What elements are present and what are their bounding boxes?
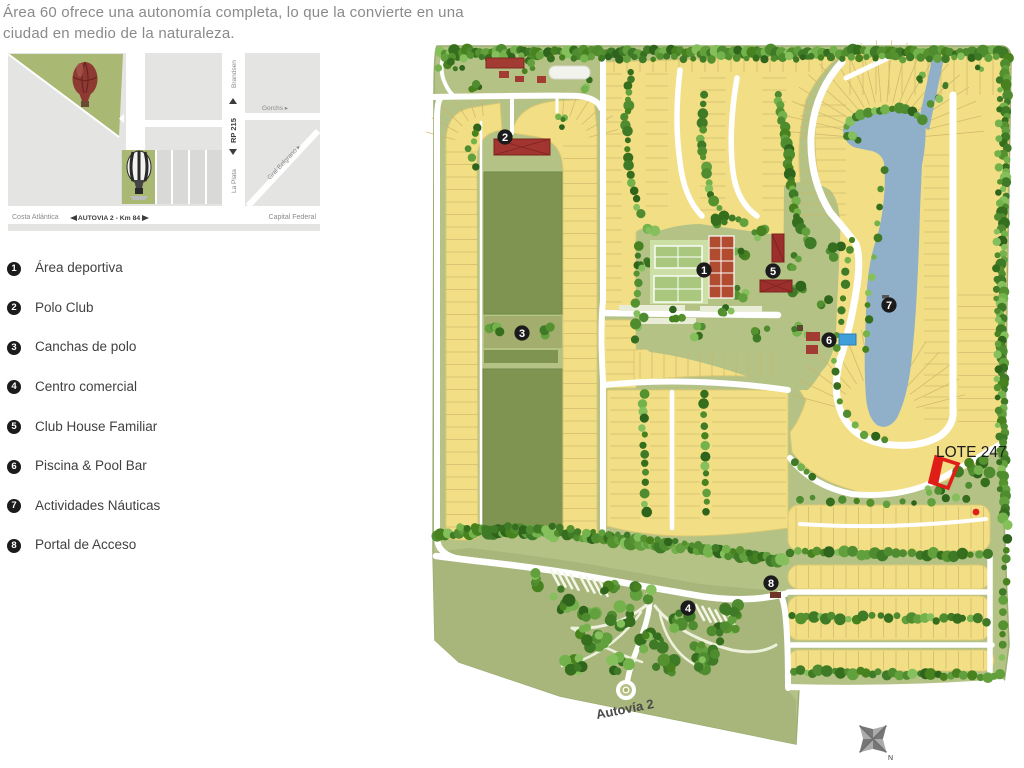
svg-text:LOTE 247: LOTE 247 [936,444,1007,461]
svg-text:Capital Federal: Capital Federal [269,214,317,221]
svg-text:1: 1 [701,265,707,277]
svg-text:3: 3 [519,328,525,340]
svg-text:8: 8 [768,578,774,590]
svg-text:7: 7 [886,300,892,312]
svg-text:Brandsen: Brandsen [231,60,238,88]
svg-text:AUTOVIA 2 - Km 84: AUTOVIA 2 - Km 84 [78,215,141,222]
svg-text:6: 6 [826,335,832,347]
svg-text:Gorchs ▸: Gorchs ▸ [262,105,289,112]
svg-text:La Plata: La Plata [231,169,238,193]
svg-text:N: N [888,755,893,762]
svg-text:5: 5 [770,266,776,278]
svg-text:4: 4 [685,603,692,615]
svg-text:RP 215: RP 215 [229,118,238,143]
svg-text:2: 2 [502,132,508,144]
svg-text:Costa Atlántica: Costa Atlántica [12,214,59,221]
